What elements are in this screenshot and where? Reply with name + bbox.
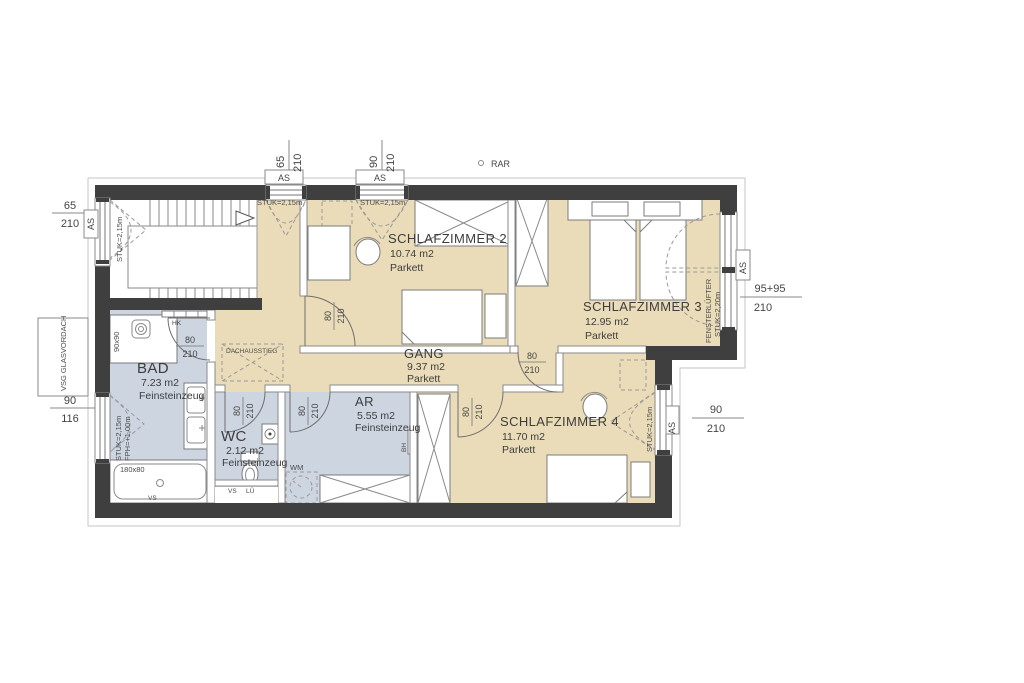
room-floor: Parkett (585, 330, 618, 342)
as-label: AS (86, 218, 96, 230)
bed-headboard-symbol (568, 198, 702, 220)
nightstand-symbol (485, 294, 506, 338)
as-label: AS (278, 173, 290, 183)
schlafzimmer3-furniture (516, 196, 702, 300)
room-area: 11.70 m2 (502, 431, 545, 443)
door-dim-w: 80 (527, 351, 537, 361)
office-chair-symbol (356, 239, 380, 265)
dim-height: 210 (385, 154, 397, 172)
fph-label: FPH=+1,00m (123, 416, 132, 461)
room-name: BAD (137, 360, 169, 377)
floor-plan-drawing: SCHLAFZIMMER 2 10.74 m2 Parkett SCHLAFZI… (0, 0, 1024, 683)
dim-height: 210 (61, 218, 79, 230)
room-floor: Parkett (502, 444, 535, 456)
svg-text:210: 210 (310, 403, 320, 418)
hk-label: HK (172, 320, 182, 327)
svg-text:80: 80 (323, 311, 333, 321)
dachausstieg-label: DACHAUSSTIEG (226, 348, 277, 355)
stuk-label: STUK=2,20m (713, 292, 722, 337)
desk-symbol (308, 226, 350, 280)
stuk-label: STUK=2,15m (645, 407, 654, 452)
room-area: 12.95 m2 (585, 316, 629, 328)
dim-width: 65 (275, 156, 287, 168)
room-floor: Parkett (390, 262, 423, 274)
svg-text:80: 80 (232, 406, 242, 416)
room-area: 5.55 m2 (357, 410, 395, 422)
bad-window (95, 393, 110, 463)
svg-text:80: 80 (461, 407, 471, 417)
dim-height: 116 (61, 413, 79, 425)
as-label: AS (667, 422, 677, 434)
dim-height: 210 (292, 154, 304, 172)
floor-plan-canvas: SCHLAFZIMMER 2 10.74 m2 Parkett SCHLAFZI… (0, 0, 1024, 683)
dim-width: 90 (710, 404, 722, 416)
svg-text:210: 210 (245, 403, 255, 418)
vsg-label: VSG GLASVORDACH (59, 316, 68, 391)
pillow-symbol (644, 202, 680, 216)
stuk-label: STUK=2,15m (360, 198, 405, 207)
door-dim-w: 80 (185, 335, 195, 345)
svg-text:210: 210 (474, 404, 484, 419)
room-name: SCHLAFZIMMER 2 (388, 231, 507, 246)
dim-width: 65 (64, 200, 76, 212)
wm-label: WM (290, 463, 303, 472)
stuk-label: STUK=2,15m (115, 217, 124, 262)
room-floor: Parkett (407, 373, 440, 385)
schlafzimmer4-upper-fill (563, 353, 655, 392)
stuk-label: STUK=2,15m (114, 416, 123, 461)
room-name: GANG (404, 346, 444, 361)
room-name: WC (221, 428, 247, 445)
room-area: 10.74 m2 (390, 248, 434, 260)
dim-height: 210 (754, 302, 772, 314)
pillow-symbol (592, 202, 628, 216)
single-bed-symbol (547, 455, 627, 503)
bh-label: BH (401, 443, 408, 452)
rar-icon (479, 161, 484, 166)
dim-height: 210 (707, 423, 725, 435)
room-name: SCHLAFZIMMER 4 (500, 414, 619, 429)
vs-label: VS (228, 488, 237, 495)
tub-size-label: 180x80 (120, 465, 145, 474)
vs-label: VS (148, 495, 157, 502)
svg-text:210: 210 (336, 308, 346, 323)
single-bed-symbol (402, 290, 482, 344)
room-name: AR (355, 394, 374, 409)
as-label: AS (374, 173, 386, 183)
double-bed-mattress (590, 220, 636, 300)
nightstand-symbol (631, 462, 650, 497)
door-dim-h: 210 (524, 365, 539, 375)
dim-width: 95+95 (755, 283, 786, 295)
room-area: 7.23 m2 (141, 377, 179, 389)
sz3-window (720, 210, 737, 332)
room-name: SCHLAFZIMMER 3 (583, 299, 702, 314)
lue-label: LÜ (246, 487, 255, 495)
radiator-symbol (162, 311, 208, 317)
svg-text:80: 80 (297, 406, 307, 416)
rar-label: RAR (491, 159, 511, 169)
dim-width: 90 (64, 395, 76, 407)
shower-size-label: 90x90 (112, 332, 121, 352)
room-area: 9.37 m2 (407, 361, 445, 373)
door-dim-h: 210 (182, 349, 197, 359)
dim-width: 90 (368, 156, 380, 168)
room-area: 2.12 m2 (226, 445, 264, 457)
room-floor: Feinsteinzeug (355, 422, 421, 434)
fensterluefter-label: FENSTERLÜFTER (704, 278, 713, 343)
room-floor: Feinsteinzeug (139, 390, 205, 402)
room-floor: Feinsteinzeug (222, 457, 288, 469)
stuk-label: STUK=2,15m (257, 198, 302, 207)
as-label: AS (738, 262, 748, 274)
